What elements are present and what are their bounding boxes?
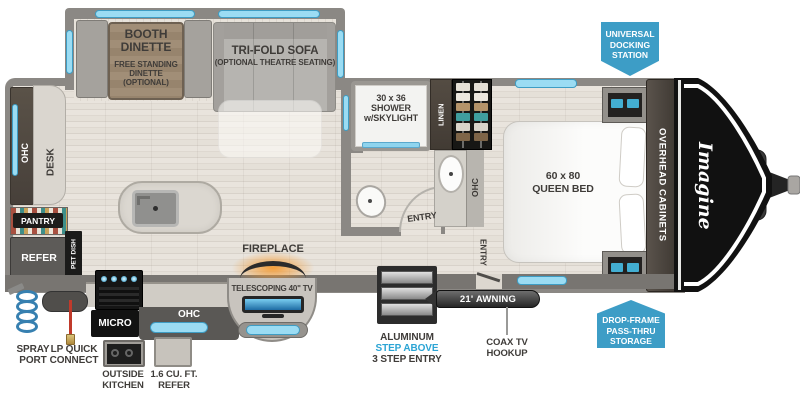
refrigerator: REFER bbox=[10, 237, 68, 278]
lp-connect-hose-icon bbox=[69, 300, 72, 336]
hanging-clothes bbox=[474, 113, 488, 121]
pet-dish-label: PET DISH bbox=[66, 233, 82, 275]
vanity-ohc-label: OHC bbox=[466, 155, 484, 221]
coax-pointer-line bbox=[506, 307, 508, 335]
hitch-coupler bbox=[788, 176, 800, 194]
hanging-clothes bbox=[474, 93, 488, 101]
sink-drain-icon bbox=[449, 172, 453, 176]
front-cap-trim bbox=[678, 80, 681, 290]
hanging-clothes bbox=[474, 133, 488, 141]
lp-pipe bbox=[42, 291, 88, 312]
hanging-clothes bbox=[456, 133, 470, 141]
stove-burner-icon bbox=[121, 276, 127, 282]
window bbox=[515, 79, 577, 88]
cabinet-accent bbox=[611, 263, 623, 272]
linen-label: LINEN bbox=[430, 80, 452, 149]
bathroom-wall bbox=[341, 145, 351, 235]
spray-port-hose-icon bbox=[16, 320, 38, 333]
range-grill bbox=[99, 287, 139, 306]
queen-bed-label: 60 x 80 QUEEN BED bbox=[513, 170, 613, 196]
floor-rug bbox=[218, 100, 322, 158]
outside-refer-label: 1.6 CU. FT. REFER bbox=[144, 370, 204, 391]
window bbox=[218, 10, 320, 18]
window bbox=[95, 10, 195, 18]
stove-burner-icon bbox=[101, 276, 107, 282]
stove-burner-icon bbox=[131, 276, 137, 282]
shower-label: 30 x 36 SHOWER w/SKYLIGHT bbox=[355, 93, 427, 123]
hanging-clothes bbox=[474, 123, 488, 131]
cabinet-accent bbox=[611, 99, 623, 108]
overhead-cabinets-label: OVERHEAD CABINETS bbox=[646, 84, 678, 286]
hanging-clothes bbox=[474, 83, 488, 91]
window bbox=[343, 95, 349, 131]
rear-ohc-label: OHC bbox=[17, 118, 33, 188]
window bbox=[150, 322, 208, 333]
steps-label-line1: ALUMINUM bbox=[375, 332, 439, 343]
stove-burner-icon bbox=[111, 276, 117, 282]
entry-step bbox=[381, 271, 433, 284]
booth-dinette-sublabel: FREE STANDING DINETTE (OPTIONAL) bbox=[86, 61, 206, 88]
brand-logo: Imagine bbox=[692, 138, 718, 234]
shower-glass bbox=[362, 142, 420, 148]
faucet-icon bbox=[137, 196, 140, 205]
floorplan-canvas: PANTRY REFER bbox=[0, 0, 800, 400]
window bbox=[517, 276, 567, 285]
exterior-ohc-label: OHC bbox=[139, 309, 239, 320]
desk-label: DESK bbox=[42, 128, 60, 196]
outside-refrigerator bbox=[154, 337, 192, 367]
sink-drain-icon bbox=[153, 206, 158, 211]
window bbox=[66, 30, 73, 74]
sofa-sublabel: (OPTIONAL THEATRE SEATING) bbox=[198, 59, 352, 68]
fireplace-label: FIREPLACE bbox=[218, 243, 328, 255]
tv-screen bbox=[242, 296, 304, 313]
hanging-clothes bbox=[456, 83, 470, 91]
hanging-clothes bbox=[456, 123, 470, 131]
hanging-clothes bbox=[456, 103, 470, 111]
booth-dinette-label: BOOTH DINETTE bbox=[86, 28, 206, 55]
hanging-clothes bbox=[456, 93, 470, 101]
awning-bar: 21' AWNING bbox=[436, 290, 540, 308]
cabinet-accent bbox=[627, 99, 639, 108]
bathroom-wall bbox=[341, 227, 401, 236]
coax-hookup-label: COAX TV HOOKUP bbox=[478, 338, 536, 359]
bedroom-entry-label: ENTRY bbox=[476, 233, 490, 271]
tv-stand bbox=[262, 314, 284, 318]
hanging-clothes bbox=[456, 113, 470, 121]
cabinet-accent bbox=[627, 263, 639, 272]
microwave: MICRO bbox=[91, 310, 139, 337]
telescoping-tv-label: TELESCOPING 40" TV bbox=[228, 285, 316, 294]
steps-label-line2: STEP ABOVE bbox=[369, 343, 445, 354]
window bbox=[246, 325, 300, 335]
lp-quick-connect-label: LP QUICK CONNECT bbox=[44, 344, 104, 366]
hanging-clothes bbox=[474, 103, 488, 111]
sofa-label: TRI-FOLD SOFA bbox=[205, 45, 345, 58]
griddle-burner-icon bbox=[125, 349, 133, 357]
toilet-flush-icon bbox=[368, 199, 372, 203]
griddle-burner-icon bbox=[111, 349, 119, 357]
pantry-label: PANTRY bbox=[13, 213, 63, 228]
steps-label-line3: 3 STEP ENTRY bbox=[367, 354, 447, 365]
